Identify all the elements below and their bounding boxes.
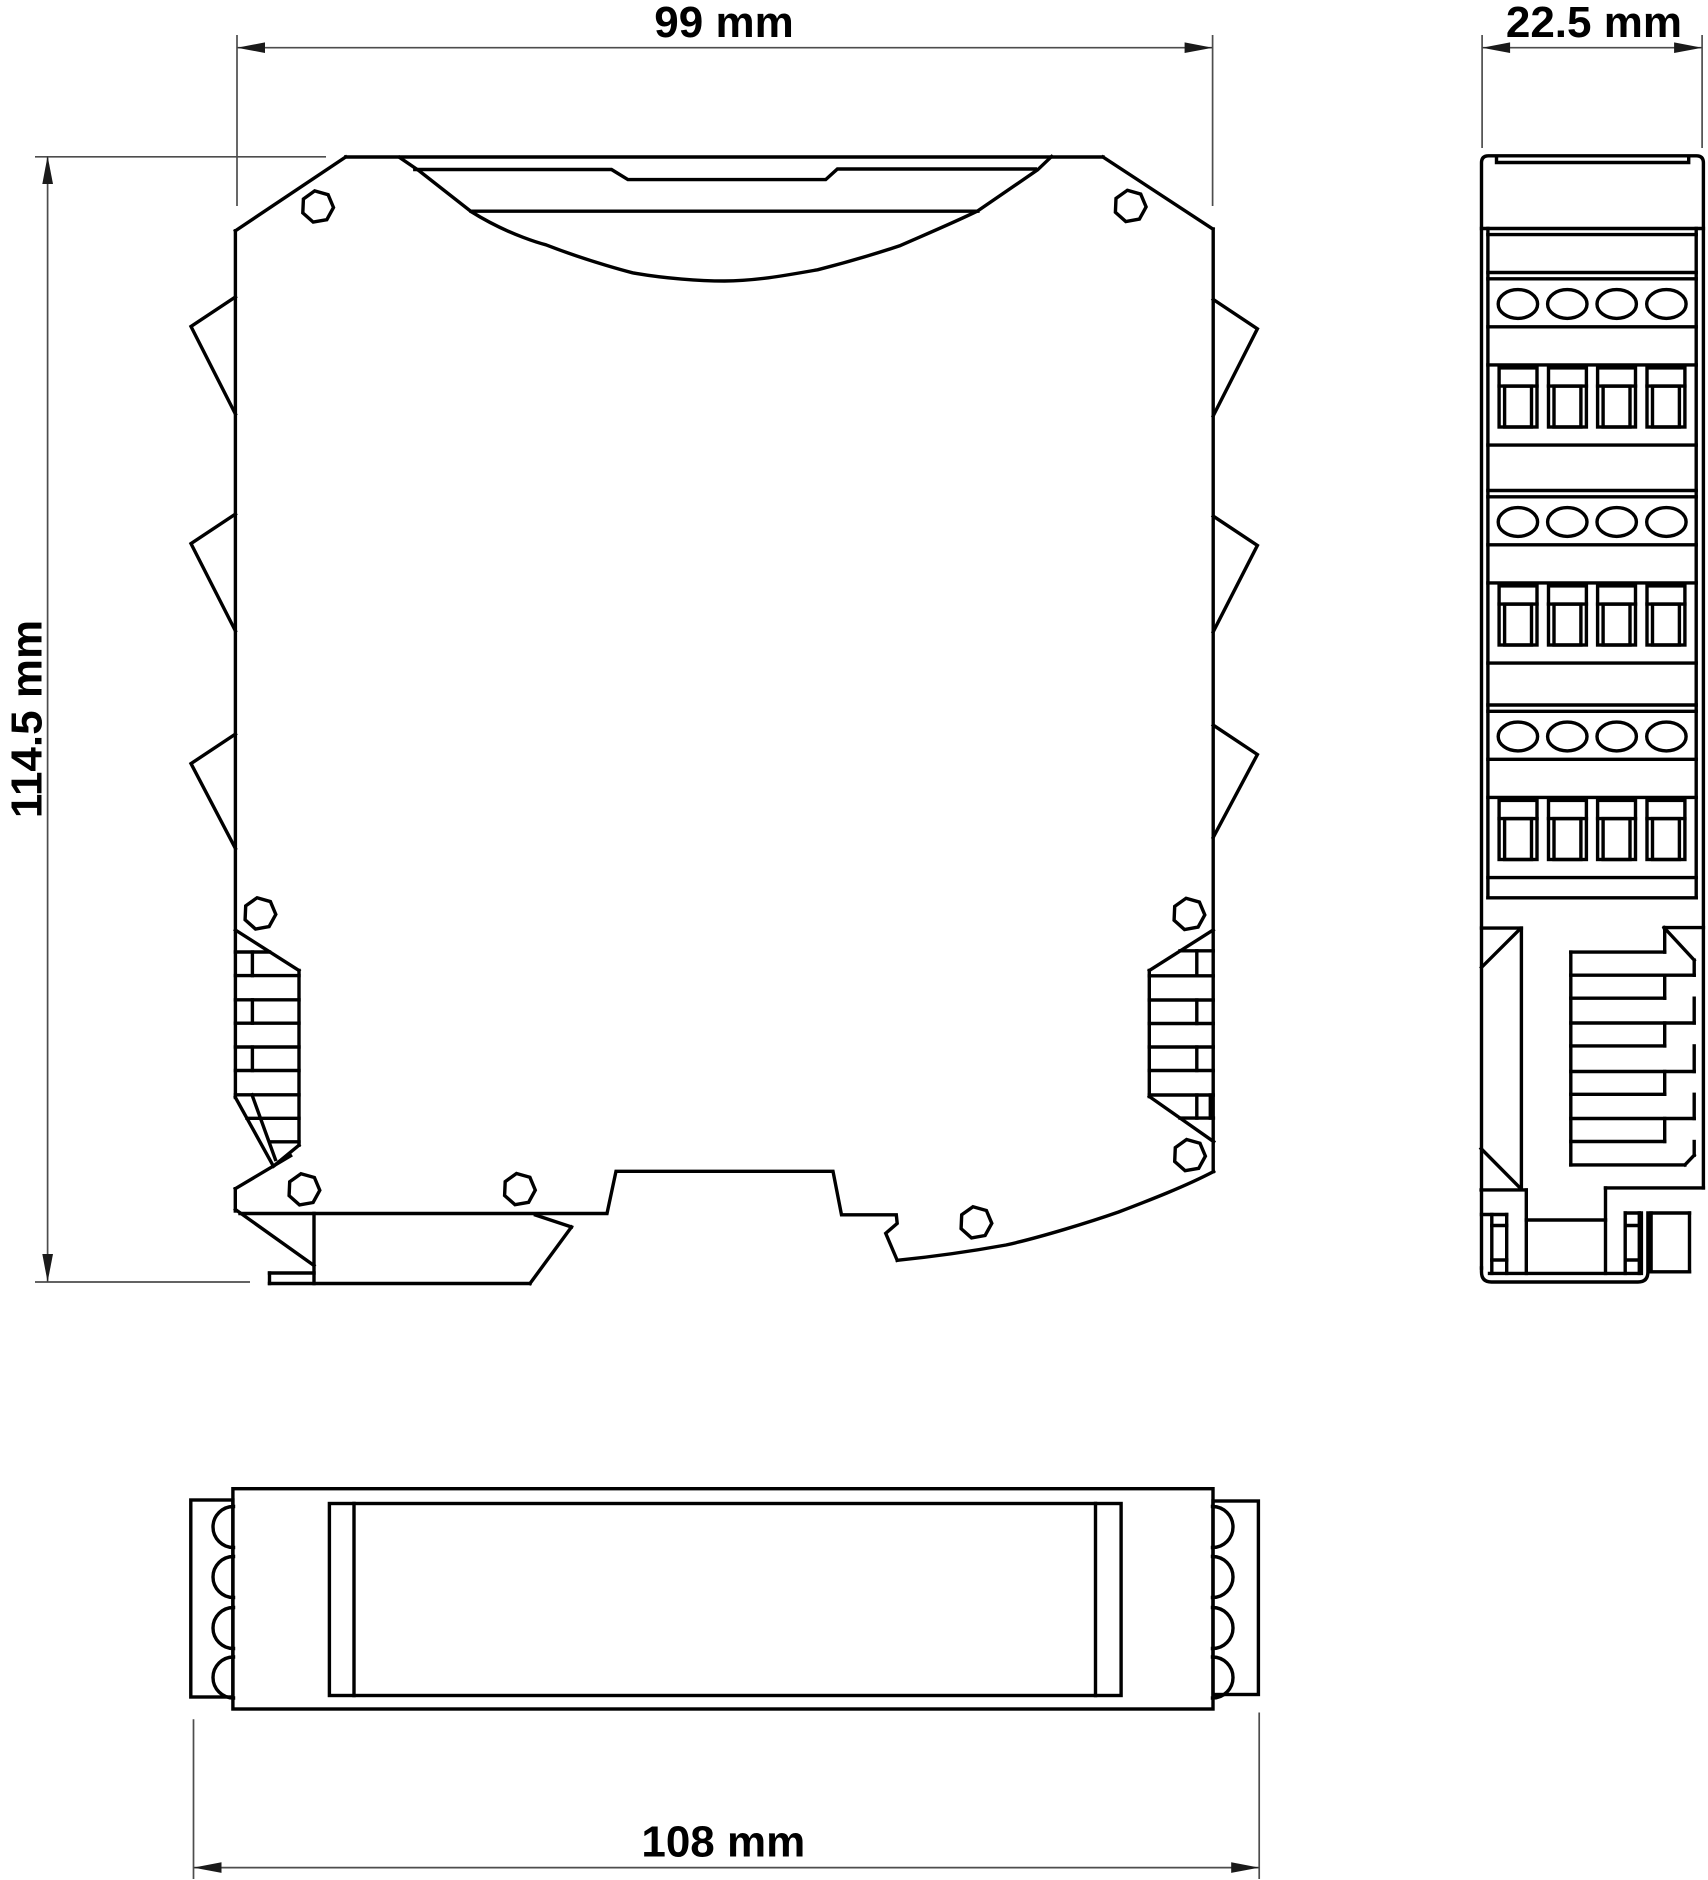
svg-text:22.5 mm: 22.5 mm: [1506, 0, 1682, 47]
svg-text:108 mm: 108 mm: [641, 1818, 805, 1867]
svg-text:99 mm: 99 mm: [654, 0, 793, 47]
svg-text:114.5 mm: 114.5 mm: [3, 620, 52, 818]
